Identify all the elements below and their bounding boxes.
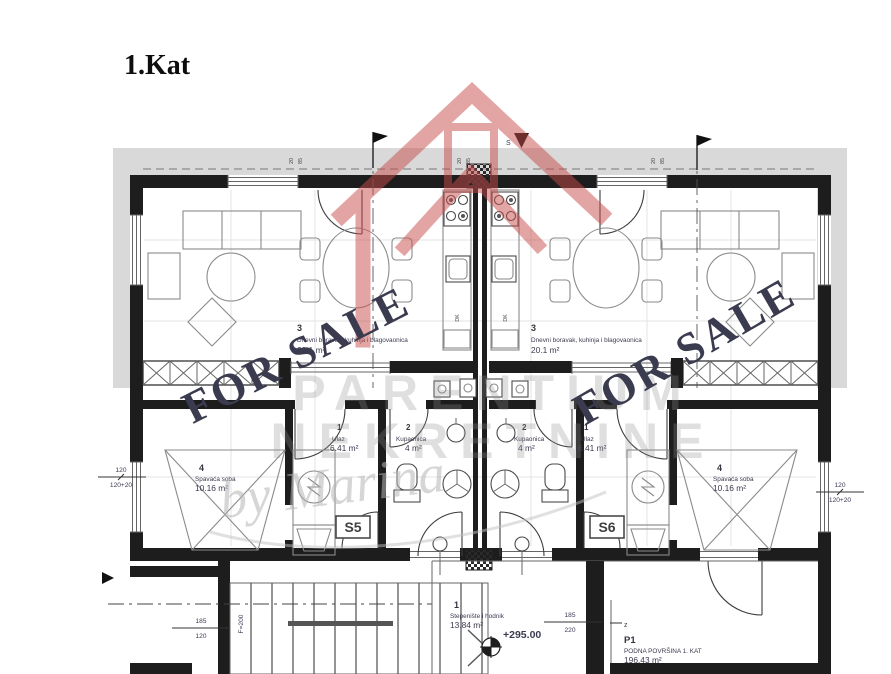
unit-id-s5: S5 [336,516,370,538]
brand-signature: by Marina [216,443,448,530]
axis-marker-z: z [610,622,628,629]
dim-stair-top: 185 [195,618,206,625]
hallway-num: 1 [454,600,459,610]
level-marker-icon [480,636,502,658]
stairs [102,561,488,674]
bedroom-right-num: 4 [717,463,722,473]
dim-hall-top: 185 [564,612,575,619]
section-marker-s-label: S [506,140,511,147]
floor-plan-canvas: S5 S6 [0,0,891,674]
summary-area: 196.43 m² [624,655,662,665]
bedroom-right-area: 10.16 m² [713,483,746,493]
dim-left-bottom: 120+20 [110,482,133,489]
unit-id-s6-label: S6 [598,519,615,535]
dim-right-top: 120 [834,482,845,489]
dim-hall-bottom: 220 [564,627,575,634]
living-right-name: Dnevni boravak, kuhinja i blagovaonica [531,337,642,344]
bedroom-right-name: Spavaća soba [713,476,754,483]
axis-marker-z-label: z [624,622,628,629]
summary-code: P1 [624,635,636,646]
dim-door-w-2: 85 [466,158,472,164]
dim-door-w-1: 85 [298,158,304,164]
unit-id-s6: S6 [590,516,624,538]
living-right-num: 3 [531,323,536,333]
dim-door-o-2: 20 [457,158,463,164]
kitchen-left-code: DK [455,314,461,322]
dim-right-bottom: 120+20 [829,497,852,504]
dim-door-w-3: 85 [660,158,666,164]
summary-label: PODNA POVRŠINA 1. KAT [624,646,702,655]
living-right-area: 20.1 m² [531,345,560,355]
hallway-name: Stepenište i hodnik [450,613,505,620]
floor-plan-page: 1.Kat [0,0,891,674]
dim-stair-side: F=200 [238,614,245,633]
level-label: +295.00 [503,629,541,641]
unit-id-s5-label: S5 [344,519,361,535]
kitchen-right-code: DK [503,314,509,322]
hallway-area: 13.84 m² [450,620,483,630]
bedroom-left-num: 4 [199,463,204,473]
kitchen-left [443,190,471,350]
dim-left-top: 120 [115,467,126,474]
dim-door-o-3: 20 [651,158,657,164]
dim-door-o-1: 20 [289,158,295,164]
dim-stair-bottom: 120 [195,633,206,640]
